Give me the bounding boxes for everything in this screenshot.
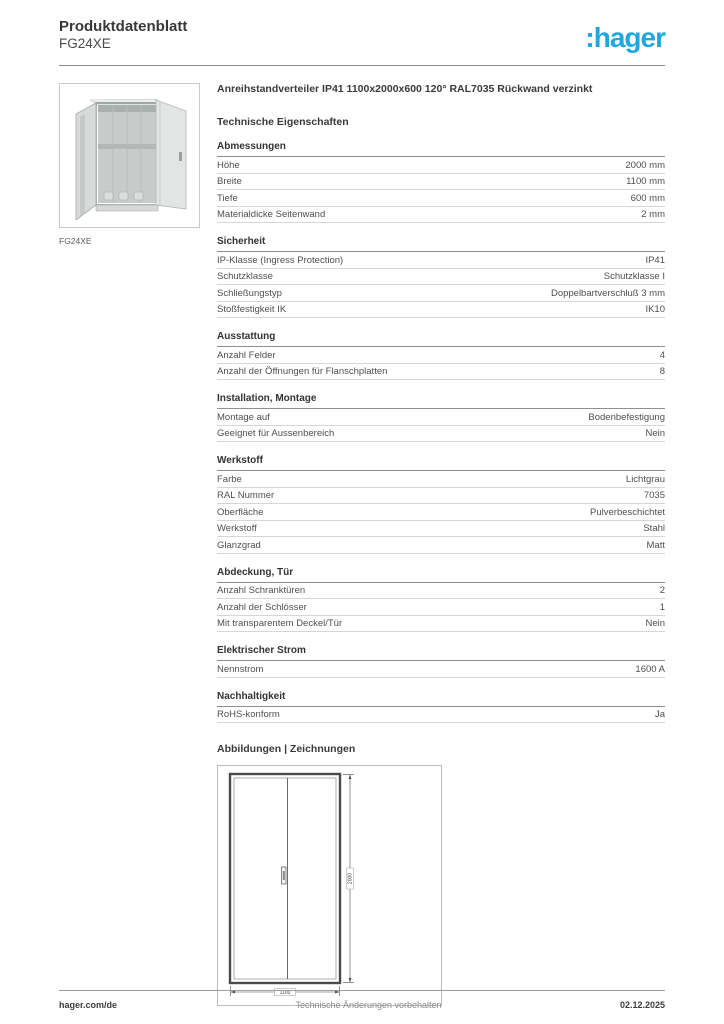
spec-row: Materialdicke Seitenwand2 mm <box>217 207 665 224</box>
spec-column: Anreihstandverteiler IP41 1100x2000x600 … <box>217 83 665 1007</box>
spec-value: 2 <box>660 585 665 596</box>
spec-value: Doppelbartverschluß 3 mm <box>551 288 665 299</box>
spec-section: Elektrischer StromNennstrom1600 A <box>217 645 665 678</box>
spec-row: IP-Klasse (Ingress Protection)IP41 <box>217 252 665 269</box>
spec-label: Montage auf <box>217 412 270 423</box>
spec-value: Bodenbefestigung <box>588 412 665 423</box>
spec-row: Stoßfestigkeit IKIK10 <box>217 302 665 319</box>
spec-row: Geeignet für AussenbereichNein <box>217 426 665 443</box>
product-image-frame <box>59 83 200 228</box>
spec-row: OberflächePulverbeschichtet <box>217 504 665 521</box>
spec-sections: AbmessungenHöhe2000 mmBreite1100 mmTiefe… <box>217 141 665 723</box>
main: FG24XE Anreihstandverteiler IP41 1100x20… <box>59 83 665 1007</box>
header: Produktdatenblatt FG24XE :hager <box>59 18 665 53</box>
spec-label: Breite <box>217 176 242 187</box>
drawings-heading: Abbildungen | Zeichnungen <box>217 743 665 755</box>
spec-label: Anzahl der Öffnungen für Flanschplatten <box>217 366 387 377</box>
product-image-caption: FG24XE <box>59 236 200 246</box>
footer-date: 02.12.2025 <box>620 1000 665 1010</box>
spec-row: Nennstrom1600 A <box>217 661 665 678</box>
datasheet-page: Produktdatenblatt FG24XE :hager <box>0 0 724 1024</box>
spec-label: Anzahl Schranktüren <box>217 585 305 596</box>
spec-label: IP-Klasse (Ingress Protection) <box>217 255 343 266</box>
spec-value: Ja <box>655 709 665 720</box>
spec-value: Stahl <box>643 523 665 534</box>
spec-value: 600 mm <box>631 193 665 204</box>
spec-value: 2000 mm <box>625 160 665 171</box>
spec-label: Anzahl der Schlösser <box>217 602 307 613</box>
technical-drawing: 2000 1100 <box>217 765 442 1006</box>
spec-label: RAL Nummer <box>217 490 274 501</box>
spec-row: RoHS-konformJa <box>217 707 665 724</box>
document-title: Produktdatenblatt <box>59 18 187 36</box>
spec-value: Pulverbeschichtet <box>590 507 665 518</box>
spec-label: Glanzgrad <box>217 540 261 551</box>
spec-value: Schutzklasse I <box>604 271 665 282</box>
spec-label: Schließungstyp <box>217 288 282 299</box>
spec-label: Farbe <box>217 474 242 485</box>
spec-label: Stoßfestigkeit IK <box>217 304 286 315</box>
spec-value: 1100 mm <box>626 176 665 187</box>
spec-row: Höhe2000 mm <box>217 157 665 174</box>
spec-row: Mit transparentem Deckel/TürNein <box>217 616 665 633</box>
spec-row: FarbeLichtgrau <box>217 471 665 488</box>
header-divider <box>59 65 665 66</box>
spec-label: Geeignet für Aussenbereich <box>217 428 334 439</box>
spec-section: SicherheitIP-Klasse (Ingress Protection)… <box>217 236 665 318</box>
spec-value: 1600 A <box>635 664 665 675</box>
document-reference: FG24XE <box>59 36 187 53</box>
section-title: Ausstattung <box>217 331 665 347</box>
product-image <box>60 84 199 227</box>
spec-row: Anzahl der Schlösser1 <box>217 599 665 616</box>
footer: hager.com/de Technische Änderungen vorbe… <box>59 990 665 1010</box>
spec-row: GlanzgradMatt <box>217 537 665 554</box>
footer-notice: Technische Änderungen vorbehalten <box>295 1000 441 1010</box>
spec-row: SchließungstypDoppelbartverschluß 3 mm <box>217 285 665 302</box>
spec-value: 4 <box>660 350 665 361</box>
spec-label: Tiefe <box>217 193 238 204</box>
section-title: Abdeckung, Tür <box>217 567 665 583</box>
spec-value: 2 mm <box>641 209 665 220</box>
spec-row: Montage aufBodenbefestigung <box>217 409 665 426</box>
product-title: Anreihstandverteiler IP41 1100x2000x600 … <box>217 83 665 96</box>
spec-section: AusstattungAnzahl Felder4Anzahl der Öffn… <box>217 331 665 380</box>
spec-value: Nein <box>645 428 665 439</box>
footer-site-link[interactable]: hager.com/de <box>59 1000 117 1010</box>
spec-section: Abdeckung, TürAnzahl Schranktüren2Anzahl… <box>217 567 665 633</box>
section-title: Nachhaltigkeit <box>217 691 665 707</box>
section-title: Sicherheit <box>217 236 665 252</box>
spec-section: Installation, MontageMontage aufBodenbef… <box>217 393 665 442</box>
spec-value: IK10 <box>645 304 665 315</box>
spec-row: RAL Nummer7035 <box>217 488 665 505</box>
spec-value: IP41 <box>645 255 665 266</box>
spec-label: Werkstoff <box>217 523 257 534</box>
spec-row: Breite1100 mm <box>217 174 665 191</box>
spec-row: SchutzklasseSchutzklasse I <box>217 269 665 286</box>
spec-label: Nennstrom <box>217 664 263 675</box>
section-title: Abmessungen <box>217 141 665 157</box>
spec-row: Anzahl der Öffnungen für Flanschplatten8 <box>217 364 665 381</box>
spec-label: Höhe <box>217 160 240 171</box>
spec-label: Anzahl Felder <box>217 350 276 361</box>
spec-section: NachhaltigkeitRoHS-konformJa <box>217 691 665 724</box>
spec-value: 1 <box>660 602 665 613</box>
spec-label: Schutzklasse <box>217 271 273 282</box>
spec-row: WerkstoffStahl <box>217 521 665 538</box>
tech-properties-heading: Technische Eigenschaften <box>217 116 665 128</box>
section-title: Elektrischer Strom <box>217 645 665 661</box>
hager-logo: :hager <box>585 24 665 52</box>
spec-row: Anzahl Felder4 <box>217 347 665 364</box>
spec-value: Matt <box>647 540 665 551</box>
drawing-height-dimension: 2000 <box>348 873 354 884</box>
spec-section: AbmessungenHöhe2000 mmBreite1100 mmTiefe… <box>217 141 665 223</box>
spec-value: Nein <box>645 618 665 629</box>
section-title: Installation, Montage <box>217 393 665 409</box>
spec-label: Mit transparentem Deckel/Tür <box>217 618 342 629</box>
spec-value: 8 <box>660 366 665 377</box>
spec-section: WerkstoffFarbeLichtgrauRAL Nummer7035Obe… <box>217 455 665 554</box>
spec-label: Oberfläche <box>217 507 263 518</box>
section-title: Werkstoff <box>217 455 665 471</box>
header-titles: Produktdatenblatt FG24XE <box>59 18 187 53</box>
spec-row: Tiefe600 mm <box>217 190 665 207</box>
spec-value: Lichtgrau <box>626 474 665 485</box>
spec-row: Anzahl Schranktüren2 <box>217 583 665 600</box>
product-image-column: FG24XE <box>59 83 200 1007</box>
spec-label: RoHS-konform <box>217 709 280 720</box>
spec-value: 7035 <box>644 490 665 501</box>
spec-label: Materialdicke Seitenwand <box>217 209 325 220</box>
